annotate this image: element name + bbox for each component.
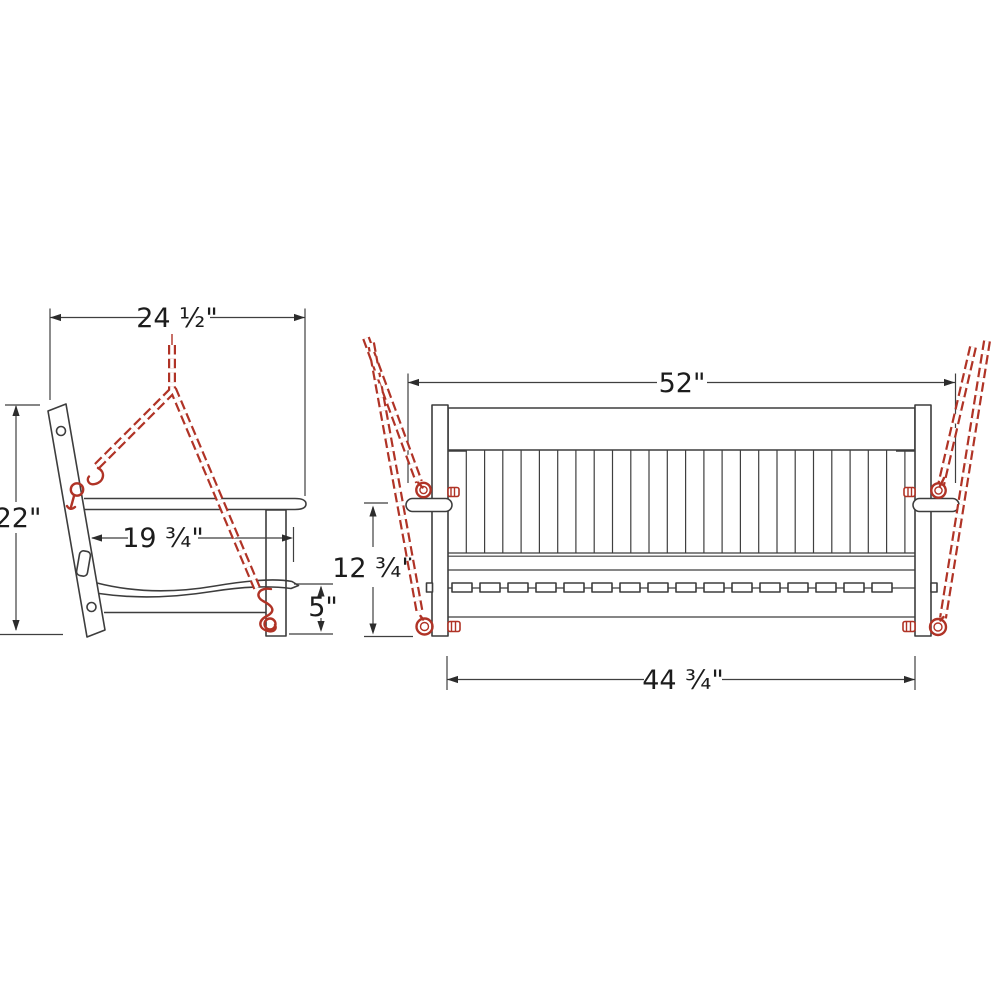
dim-side-width: 24 ½" bbox=[50, 303, 305, 496]
dim-clearance: 5" bbox=[289, 584, 338, 634]
arrowhead-left bbox=[91, 534, 102, 541]
dim-label-front-width: 52" bbox=[659, 368, 706, 399]
back-top-rail bbox=[448, 408, 915, 450]
rail-stub-right bbox=[931, 583, 937, 592]
back-bottom-rail-lines bbox=[448, 553, 915, 556]
bolt-head bbox=[903, 622, 915, 632]
arrowhead-down bbox=[369, 624, 376, 635]
arrowhead-right bbox=[282, 534, 293, 541]
arrowhead-left bbox=[447, 676, 458, 683]
arrowhead-right bbox=[294, 314, 305, 321]
eye-ring-inner bbox=[934, 623, 942, 631]
front-post bbox=[266, 510, 286, 636]
dim-label-clearance: 5" bbox=[308, 592, 338, 623]
front-view: 52" 12 ¾" 44 ¾" bbox=[332, 338, 987, 696]
right-post bbox=[915, 405, 931, 636]
eye-ring-inner bbox=[421, 623, 429, 631]
bolt-head bbox=[904, 488, 915, 497]
arrowhead-left bbox=[408, 379, 419, 386]
bolt-head bbox=[448, 488, 459, 497]
dim-label-seat-width: 44 ¾" bbox=[642, 665, 724, 696]
hook-curve bbox=[88, 468, 103, 484]
dim-label-side-width: 24 ½" bbox=[136, 303, 218, 334]
dim-seat-depth: 19 ¾" bbox=[91, 523, 294, 562]
dim-label-side-height: 22" bbox=[0, 503, 41, 534]
dim-seat-width: 44 ¾" bbox=[447, 656, 915, 696]
rail-stub-left bbox=[427, 583, 433, 592]
dimension-drawing: 24 ½" 22" 19 ¾" 5" bbox=[0, 0, 1000, 1000]
arrowhead-right bbox=[944, 379, 955, 386]
post-hole-top bbox=[57, 427, 66, 436]
arrowhead-down bbox=[12, 620, 19, 631]
bolt-head bbox=[448, 622, 460, 632]
chain-connectors bbox=[418, 478, 944, 621]
front-view-frame bbox=[406, 405, 959, 636]
eye-ring bbox=[931, 483, 945, 497]
arrowhead-up bbox=[12, 405, 19, 416]
s-hook-front bbox=[258, 589, 275, 632]
eye-ring bbox=[416, 483, 430, 497]
side-view: 24 ½" 22" 19 ¾" 5" bbox=[0, 303, 338, 637]
eye-bolts bbox=[416, 483, 946, 635]
eye-ring bbox=[417, 619, 433, 635]
back-post bbox=[48, 404, 105, 637]
eye-ring-inner bbox=[935, 487, 942, 494]
dim-label-front-height: 12 ¾" bbox=[332, 553, 414, 584]
arrowhead-up bbox=[369, 506, 376, 517]
armrest-left bbox=[406, 499, 452, 512]
post-slot bbox=[76, 550, 91, 577]
drawing-canvas: 24 ½" 22" 19 ¾" 5" bbox=[0, 0, 1000, 1000]
left-post bbox=[432, 405, 448, 636]
armrest-right bbox=[913, 499, 959, 512]
dim-label-seat-depth: 19 ¾" bbox=[122, 523, 204, 554]
armrest-side bbox=[84, 499, 306, 510]
back-slats bbox=[466, 450, 905, 553]
post-hole-bottom bbox=[87, 603, 96, 612]
dim-front-width: 52" bbox=[408, 368, 956, 483]
hook-curve bbox=[258, 589, 275, 632]
arrowhead-right bbox=[904, 676, 915, 683]
s-hook-back bbox=[67, 468, 103, 509]
eye-ring bbox=[930, 619, 946, 635]
arrowhead-left bbox=[50, 314, 61, 321]
hook-stem bbox=[67, 496, 75, 509]
